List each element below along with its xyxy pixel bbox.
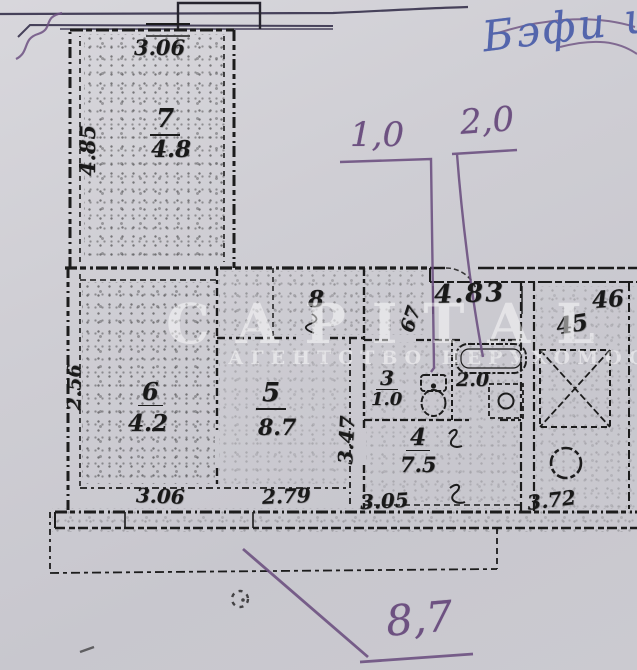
room-2-area: 2.0: [456, 371, 489, 390]
sink-icon: [489, 384, 523, 418]
room-4-area: 7.5: [400, 454, 437, 475]
handwritten-dim-2-0: 2,0: [459, 102, 515, 140]
common-dim-bottom: 3.72: [526, 487, 577, 513]
room-6-area: 4.2: [128, 412, 168, 435]
room-7-area: 4.8: [151, 138, 191, 161]
room-5-area: 8.7: [258, 417, 296, 439]
room-4-dim-bottom: 3.05: [360, 490, 410, 513]
room-7-dim-top: 3.06: [134, 37, 185, 58]
room-6-dim-bottom: 3.06: [136, 485, 185, 507]
handwritten-balcony-area: 8,7: [384, 595, 454, 643]
room-6-number: 6: [138, 380, 163, 406]
room-7-dim-side: 4.85: [77, 125, 98, 176]
smudge-mark: [232, 591, 248, 607]
round-fixture-icon: [551, 448, 581, 478]
handwritten-dim-1-0: 1,0: [350, 118, 404, 152]
small-ink-dash: [80, 647, 94, 652]
room-4-number: 4: [406, 426, 430, 451]
room-3-number: 3: [376, 368, 398, 390]
room-5-number: 5: [256, 380, 286, 410]
room-3-area: 1.0: [371, 391, 402, 409]
room-6-dim-side: 2.56: [66, 364, 85, 410]
room-5-dim-side: 3.47: [335, 415, 358, 465]
watermark-title: CAPITAL: [166, 296, 621, 351]
toilet-icon: [421, 375, 446, 416]
balcony-walls: [50, 512, 497, 573]
room-5-dim-bottom: 2.79: [262, 485, 311, 507]
scanned-floor-plan-photo: 7 4.8 3.06 4.85 6 4.2 3.06 2.56 5 8.7 2.…: [0, 0, 637, 670]
pen-squiggle-left-icon: [16, 13, 62, 59]
watermark-subtitle: АГЕНТСТВО НЕРУХОМОСТІ: [228, 349, 637, 368]
room-7-number: 7: [150, 106, 180, 136]
